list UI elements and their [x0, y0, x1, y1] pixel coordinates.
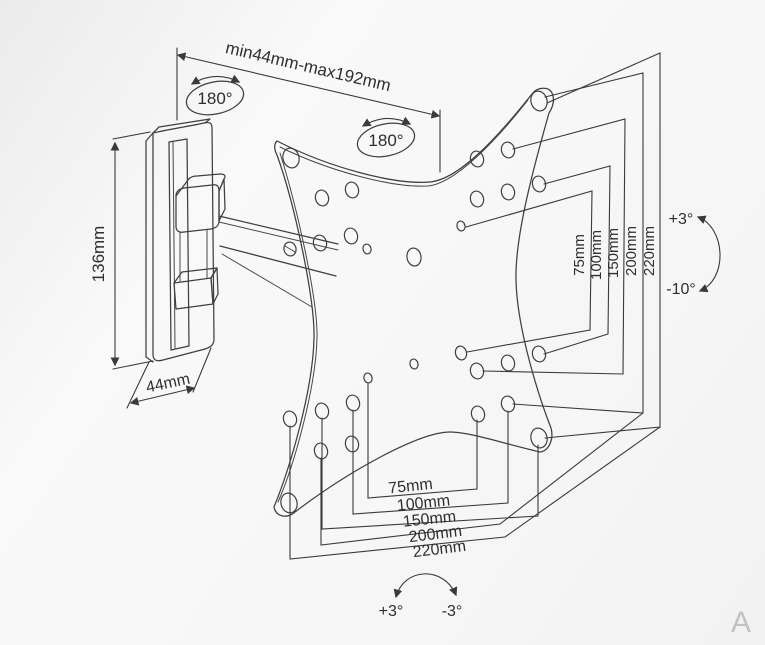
watermark-letter: A: [731, 606, 751, 639]
tilt-up-label: +3°: [669, 211, 694, 228]
vesa-plate-drawing: [274, 88, 553, 516]
level-indicator: +3° -3°: [379, 574, 463, 620]
mount-arm: [219, 216, 338, 307]
manual-page: 136mm 44mm min44mm-max192mm 180° 180° 75: [0, 0, 765, 645]
dim-vesa-vertical: 75mm 100mm 150mm 200mm 220mm: [466, 53, 660, 438]
vesa-v-150-label: 150mm: [605, 228, 622, 278]
vesa-v-75-label: 75mm: [571, 234, 588, 276]
swivel-plate-indicator: 180°: [354, 118, 417, 161]
swivel-wall-indicator: 180°: [183, 76, 246, 119]
vesa-v-220-label: 220mm: [641, 226, 658, 276]
vesa-v-100-label: 100mm: [588, 230, 605, 280]
wall-plate-width-label: 44mm: [145, 371, 192, 397]
dim-wall-plate-width: 44mm: [127, 348, 211, 408]
level-left-label: +3°: [379, 603, 404, 620]
level-right-label: -3°: [442, 603, 463, 620]
swivel-wall-label: 180°: [197, 89, 232, 108]
wall-mount-diagram: 136mm 44mm min44mm-max192mm 180° 180° 75: [0, 0, 765, 645]
wall-plate-height-label: 136mm: [89, 226, 108, 283]
edge-screw: [282, 241, 297, 258]
tilt-indicator: +3° -10°: [666, 211, 720, 298]
vesa-v-200-label: 200mm: [623, 226, 640, 276]
swivel-plate-label: 180°: [368, 131, 403, 150]
arm-extension-label: min44mm-max192mm: [224, 38, 393, 95]
tilt-down-label: -10°: [666, 281, 696, 298]
dim-wall-plate-height: 136mm: [89, 132, 153, 369]
